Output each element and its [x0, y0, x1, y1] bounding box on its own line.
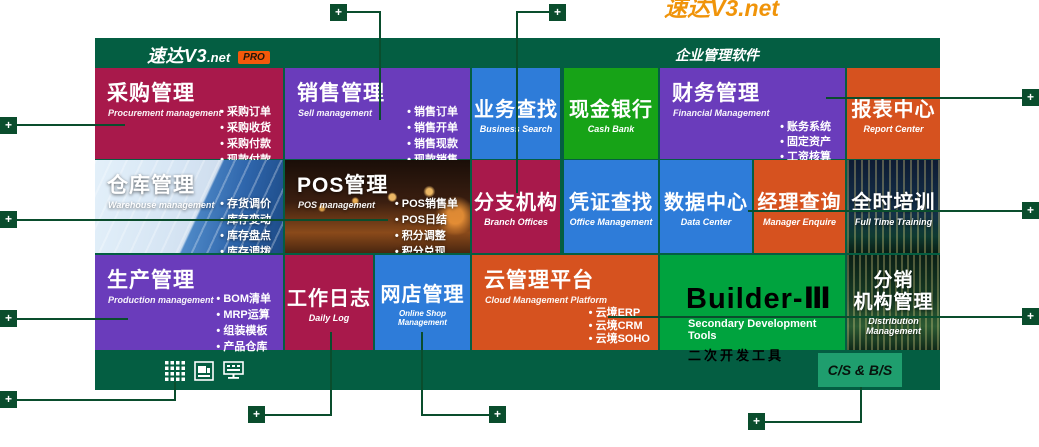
tile-title: Builder-Ⅲ — [686, 281, 845, 316]
callout-line — [826, 97, 1022, 99]
tile-title: 网店管理 — [381, 278, 465, 307]
bullet-item: BOM清单 — [216, 291, 271, 307]
tile-subtitle: Cloud Management Platform — [485, 295, 658, 305]
callout-line — [174, 382, 176, 401]
callout-line — [516, 11, 518, 193]
callout-marker-right-2[interactable]: + — [1022, 202, 1039, 219]
tile-financial[interactable]: 财务管理 Financial Management 账务系统 固定资产 工资核算 — [660, 68, 845, 159]
bullet-list: 销售订单 销售开单 销售现款 现款销售 — [407, 104, 458, 168]
bullet-item: 库存调拨 — [220, 244, 271, 253]
bullet-item: 积分兑现 — [395, 244, 458, 253]
tile-title: 工作日志 — [287, 282, 371, 311]
pro-badge: PRO — [238, 51, 270, 64]
callout-marker-bottom-1[interactable]: + — [0, 391, 17, 408]
tile-subtitle: Cash Bank — [588, 124, 635, 134]
tile-title: 仓库管理 — [107, 169, 283, 199]
tile-subtitle: Financial Management — [673, 108, 845, 118]
callout-line — [379, 11, 381, 120]
top-banner-text: 速达V3.net — [664, 0, 779, 18]
bullet-item: POS日结 — [395, 212, 458, 228]
tile-production[interactable]: 生产管理 Production management BOM清单 MRP运算 组… — [95, 255, 283, 350]
callout-line — [17, 219, 388, 221]
callout-line — [608, 316, 1022, 318]
callout-line — [421, 332, 423, 416]
logo-main: 速达V3 — [147, 46, 207, 66]
tile-title: 财务管理 — [672, 77, 845, 107]
callout-marker-bottom-3[interactable]: + — [489, 406, 506, 423]
tile-title: 数据中心 — [664, 186, 748, 215]
app-logo: 速达V3.netPRO — [147, 42, 270, 68]
tile-daily-log[interactable]: 工作日志 Daily Log — [285, 255, 373, 350]
network-monitor-icon[interactable] — [223, 361, 244, 381]
tile-subtitle: Manager Enquire — [763, 217, 836, 227]
cs-bs-badge: C/S & B/S — [818, 353, 902, 387]
callout-line — [748, 210, 1022, 212]
tile-sell[interactable]: 销售管理 Sell management 销售订单 销售开单 销售现款 现款销售 — [285, 68, 470, 159]
tile-builder[interactable]: Builder-Ⅲ Secondary Development Tools 二次… — [660, 255, 845, 350]
tile-subtitle: Secondary Development Tools — [688, 318, 845, 342]
callout-line — [422, 414, 489, 416]
callout-marker-right-3[interactable]: + — [1022, 308, 1039, 325]
bullet-item: 积分调整 — [395, 228, 458, 244]
callout-line — [516, 11, 549, 13]
bullet-item: 云境SOHO — [589, 333, 650, 346]
tile-subtitle: Report Center — [863, 124, 923, 134]
bullet-list: 采购订单 采购收货 采购付款 现款付款 — [220, 104, 271, 168]
bullet-item: 存货调价 — [220, 196, 271, 212]
logo-suffix: .net — [207, 50, 230, 65]
tile-subtitle: Full Time Training — [855, 217, 932, 227]
gallery-icon[interactable] — [194, 361, 214, 381]
bullet-list: BOM清单 MRP运算 组装模板 产品仓库 — [216, 291, 271, 355]
bullet-list: 存货调价 库存变动 库存盘点 库存调拨 — [220, 196, 271, 253]
callout-marker-left-3[interactable]: + — [0, 310, 17, 327]
tile-data-center[interactable]: 数据中心 Data Center — [660, 160, 752, 253]
tile-subtitle: Daily Log — [309, 313, 350, 323]
tile-title-line2: 机构管理 — [853, 292, 933, 314]
footer-bar: C/S & B/S — [95, 352, 940, 390]
tile-subtitle: Office Management — [570, 217, 653, 227]
bullet-item: 销售开单 — [407, 120, 458, 136]
callout-marker-top-2[interactable]: + — [549, 4, 566, 21]
tile-report-center[interactable]: 报表中心 Report Center — [847, 68, 940, 159]
callout-marker-bottom-4[interactable]: + — [748, 413, 765, 430]
tile-title: 销售管理 — [297, 77, 470, 107]
tile-warehouse[interactable]: 仓库管理 Warehouse management 存货调价 库存变动 库存盘点… — [95, 160, 283, 253]
tile-title-line1: 分销 — [873, 270, 913, 292]
tile-title: 现金银行 — [569, 93, 653, 122]
tile-title: 云管理平台 — [484, 264, 658, 294]
callout-line — [765, 421, 862, 423]
callout-marker-left-2[interactable]: + — [0, 211, 17, 228]
callout-line — [17, 124, 125, 126]
bullet-item: 销售订单 — [407, 104, 458, 120]
tile-title: POS管理 — [297, 169, 470, 199]
bullet-list: POS销售单 POS日结 积分调整 积分兑现 — [395, 196, 458, 253]
tile-procurement[interactable]: 采购管理 Procurement management 采购订单 采购收货 采购… — [95, 68, 283, 159]
bullet-item: 云境ERP — [589, 307, 650, 320]
app-canvas: 速达V3.net 速达V3.netPRO 企业管理软件 采购管理 Procure… — [0, 0, 1039, 447]
bullet-item: 固定资产 — [780, 135, 831, 150]
tile-title: 采购管理 — [107, 77, 283, 107]
bullet-list: 云境ERP 云境CRM 云境SOHO — [589, 307, 650, 346]
bullet-item: 账务系统 — [780, 120, 831, 135]
tile-distribution[interactable]: 分销 机构管理 Distribution Management — [847, 255, 940, 350]
callout-marker-top-1[interactable]: + — [330, 4, 347, 21]
tile-cash-bank[interactable]: 现金银行 Cash Bank — [564, 68, 658, 159]
bullet-item: 采购付款 — [220, 136, 271, 152]
callout-line — [17, 318, 128, 320]
bullet-list: 账务系统 固定资产 工资核算 — [780, 120, 831, 165]
callout-marker-bottom-2[interactable]: + — [248, 406, 265, 423]
bullet-item: 采购订单 — [220, 104, 271, 120]
callout-line — [265, 414, 332, 416]
tile-pos[interactable]: POS管理 POS management POS销售单 POS日结 积分调整 积… — [285, 160, 470, 253]
bullet-item: POS销售单 — [395, 196, 458, 212]
callout-line — [347, 11, 381, 13]
tile-voucher-search[interactable]: 凭证查找 Office Management — [564, 160, 658, 253]
callout-line — [860, 387, 862, 423]
top-banner-clipped: 速达V3.net — [664, 0, 834, 18]
bullet-item: 组装模板 — [216, 323, 271, 339]
callout-marker-left-1[interactable]: + — [0, 117, 17, 134]
tile-subtitle: Branch Offices — [484, 217, 548, 227]
tile-subtitle: Online Shop Management — [375, 309, 470, 327]
header-title: 企业管理软件 — [675, 45, 759, 65]
tile-title: 生产管理 — [107, 264, 283, 294]
bullet-item: 销售现款 — [407, 136, 458, 152]
tile-cloud-platform[interactable]: 云管理平台 Cloud Management Platform 云境ERP 云境… — [472, 255, 658, 350]
callout-line — [17, 399, 176, 401]
bullet-item: 云境CRM — [589, 320, 650, 333]
bullet-item: 采购收货 — [220, 120, 271, 136]
bullet-item: 库存盘点 — [220, 228, 271, 244]
bullet-item: MRP运算 — [216, 307, 271, 323]
tile-subtitle: Data Center — [681, 217, 732, 227]
tile-full-time-training[interactable]: 全时培训 Full Time Training — [847, 160, 940, 253]
tile-manager-enquire[interactable]: 经理查询 Manager Enquire — [754, 160, 845, 253]
tile-title: 凭证查找 — [569, 186, 653, 215]
footer-icons — [165, 361, 244, 381]
tile-subtitle: Distribution Management — [847, 316, 940, 336]
callout-marker-right-1[interactable]: + — [1022, 89, 1039, 106]
grid-icon[interactable] — [165, 361, 185, 381]
callout-line — [330, 332, 332, 416]
